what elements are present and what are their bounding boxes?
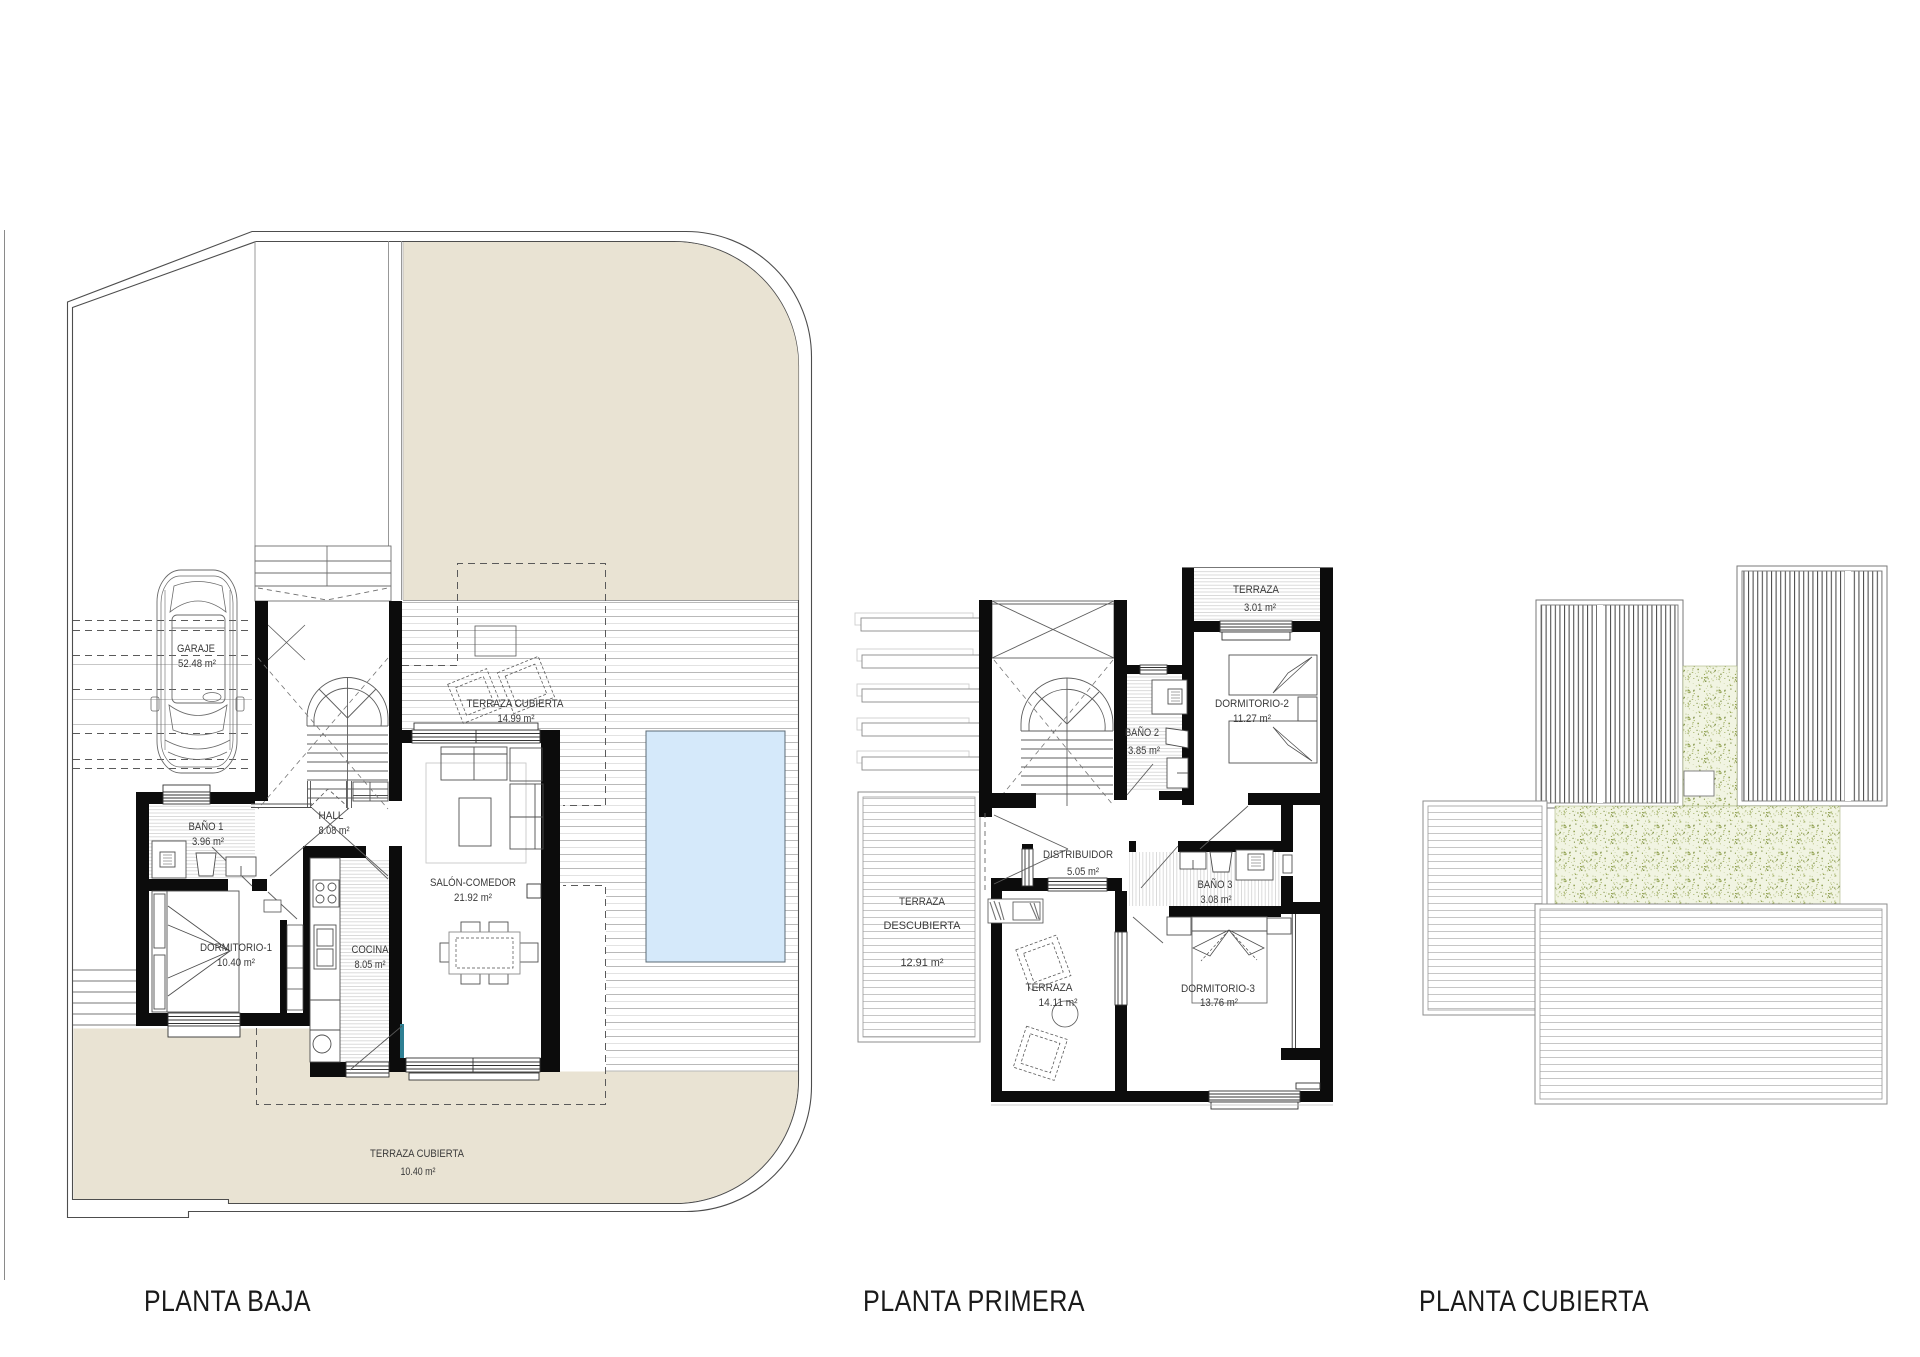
svg-text:11.27 m²: 11.27 m² [1233, 713, 1271, 725]
svg-text:COCINA: COCINA [352, 944, 390, 956]
svg-text:12.91 m²: 12.91 m² [901, 957, 944, 969]
svg-text:BAÑO 3: BAÑO 3 [1198, 878, 1233, 891]
svg-text:DORMITORIO-2: DORMITORIO-2 [1215, 698, 1289, 710]
svg-text:8.08 m²: 8.08 m² [319, 825, 350, 837]
svg-text:BAÑO 1: BAÑO 1 [189, 820, 224, 833]
svg-text:10.40 m²: 10.40 m² [217, 957, 255, 969]
svg-text:DISTRIBUIDOR: DISTRIBUIDOR [1043, 849, 1113, 861]
svg-text:TERRAZA: TERRAZA [1233, 584, 1280, 596]
svg-text:3.85 m²: 3.85 m² [1128, 745, 1160, 757]
svg-text:5.05 m²: 5.05 m² [1067, 866, 1099, 878]
svg-text:PLANTA BAJA: PLANTA BAJA [144, 1285, 311, 1318]
svg-text:8.05 m²: 8.05 m² [355, 959, 386, 971]
svg-text:TERRAZA: TERRAZA [1026, 982, 1074, 994]
svg-text:TERRAZA CUBIERTA: TERRAZA CUBIERTA [467, 698, 565, 710]
svg-text:14.99 m²: 14.99 m² [498, 713, 535, 725]
svg-text:GARAJE: GARAJE [177, 643, 215, 655]
svg-text:52.48 m²: 52.48 m² [178, 658, 216, 670]
svg-text:DORMITORIO-1: DORMITORIO-1 [200, 942, 272, 954]
svg-text:13.76 m²: 13.76 m² [1200, 997, 1238, 1009]
svg-text:TERRAZA CUBIERTA: TERRAZA CUBIERTA [370, 1148, 465, 1160]
svg-text:3.01 m²: 3.01 m² [1244, 602, 1276, 614]
svg-text:10.40 m²: 10.40 m² [401, 1166, 436, 1178]
svg-text:TERRAZA: TERRAZA [899, 896, 946, 908]
svg-text:3.96 m²: 3.96 m² [192, 836, 224, 848]
svg-text:21.92 m²: 21.92 m² [454, 892, 492, 904]
svg-text:PLANTA PRIMERA: PLANTA PRIMERA [863, 1285, 1085, 1318]
svg-text:SALÓN-COMEDOR: SALÓN-COMEDOR [430, 876, 516, 889]
svg-text:DESCUBIERTA: DESCUBIERTA [884, 920, 962, 932]
svg-text:PLANTA CUBIERTA: PLANTA CUBIERTA [1419, 1285, 1649, 1318]
svg-text:DORMITORIO-3: DORMITORIO-3 [1181, 983, 1255, 995]
svg-text:HALL: HALL [319, 810, 344, 822]
svg-text:BAÑO 2: BAÑO 2 [1125, 726, 1159, 739]
svg-text:3.08 m²: 3.08 m² [1201, 894, 1232, 906]
svg-text:14.11 m²: 14.11 m² [1039, 997, 1078, 1009]
